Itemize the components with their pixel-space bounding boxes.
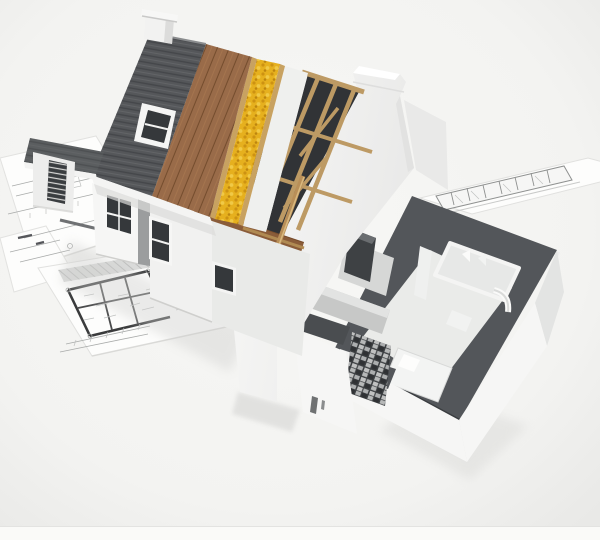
facade-window <box>149 216 172 266</box>
architectural-render <box>0 0 600 540</box>
bottom-strip <box>0 526 600 540</box>
house-blueprint-scene <box>0 0 600 540</box>
